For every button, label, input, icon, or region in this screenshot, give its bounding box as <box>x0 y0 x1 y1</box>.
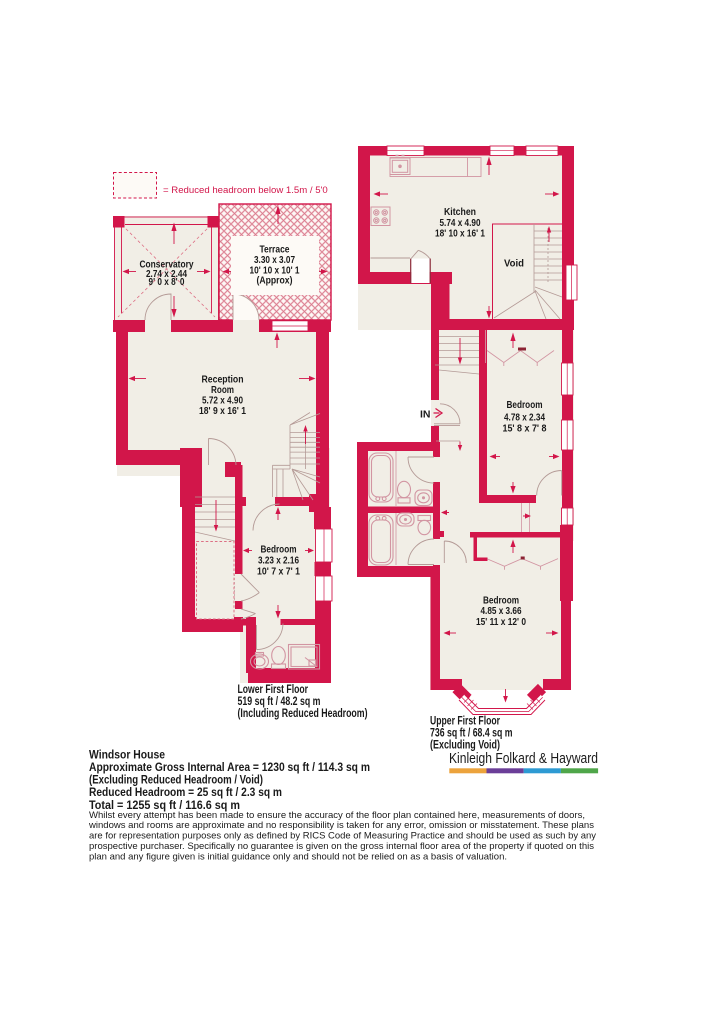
svg-text:Lower First Floor: Lower First Floor <box>238 684 309 696</box>
svg-text:Bedroom: Bedroom <box>261 545 297 556</box>
svg-text:Kitchen: Kitchen <box>444 207 476 218</box>
svg-text:5.74 x 4.90: 5.74 x 4.90 <box>440 218 481 229</box>
svg-text:Bedroom: Bedroom <box>507 400 543 411</box>
svg-text:IN: IN <box>420 409 431 421</box>
svg-text:plan and any figure given is i: plan and any figure given is initial gui… <box>89 852 507 862</box>
svg-text:Bedroom: Bedroom <box>483 596 519 607</box>
svg-text:Terrace: Terrace <box>260 245 290 256</box>
svg-text:(Including Reduced Headroom): (Including Reduced Headroom) <box>238 708 368 720</box>
svg-text:3.30 x 3.07: 3.30 x 3.07 <box>254 255 295 266</box>
svg-text:18' 10 x 16' 1: 18' 10 x 16' 1 <box>435 229 485 240</box>
svg-text:736 sq ft / 68.4 sq m: 736 sq ft / 68.4 sq m <box>430 728 513 740</box>
svg-text:519 sq ft / 48.2 sq m: 519 sq ft / 48.2 sq m <box>238 696 321 708</box>
svg-text:Reduced Headroom = 25 sq ft /: Reduced Headroom = 25 sq ft / 2.3 sq m <box>89 787 282 799</box>
svg-text:Void: Void <box>504 259 524 270</box>
svg-text:are for representation purpose: are for representation purposes only as … <box>89 831 596 841</box>
svg-text:(Approx): (Approx) <box>257 276 293 287</box>
svg-text:15' 8 x 7' 8: 15' 8 x 7' 8 <box>503 424 547 435</box>
svg-text:4.85 x 3.66: 4.85 x 3.66 <box>481 606 522 617</box>
svg-text:(Excluding Reduced Headroom /: (Excluding Reduced Headroom / Void) <box>89 775 263 787</box>
svg-text:9' 0 x 8' 0: 9' 0 x 8' 0 <box>149 277 185 288</box>
svg-text:10' 7 x 7' 1: 10' 7 x 7' 1 <box>257 567 300 578</box>
svg-text:3.23 x 2.16: 3.23 x 2.16 <box>258 556 299 567</box>
svg-text:Windsor House: Windsor House <box>89 749 165 761</box>
svg-text:18' 9 x 16' 1: 18' 9 x 16' 1 <box>199 406 246 417</box>
svg-text:4.78 x 2.34: 4.78 x 2.34 <box>504 413 545 424</box>
svg-text:Room: Room <box>211 385 234 396</box>
svg-text:15' 11 x 12' 0: 15' 11 x 12' 0 <box>476 617 526 628</box>
svg-text:prospective purchaser. Specifi: prospective purchaser. Specifically no g… <box>89 841 594 851</box>
svg-text:Upper First Floor: Upper First Floor <box>430 716 500 728</box>
svg-text:Whilst every attempt has been: Whilst every attempt has been made to en… <box>89 810 585 820</box>
svg-text:= Reduced headroom below 1.5m: = Reduced headroom below 1.5m / 5'0 <box>163 185 328 196</box>
svg-text:windows and rooms are approxim: windows and rooms are approximate and no… <box>88 820 594 830</box>
svg-text:Kinleigh Folkard & Hayward: Kinleigh Folkard & Hayward <box>449 750 598 767</box>
svg-text:Approximate Gross Internal Are: Approximate Gross Internal Area = 1230 s… <box>89 762 370 774</box>
